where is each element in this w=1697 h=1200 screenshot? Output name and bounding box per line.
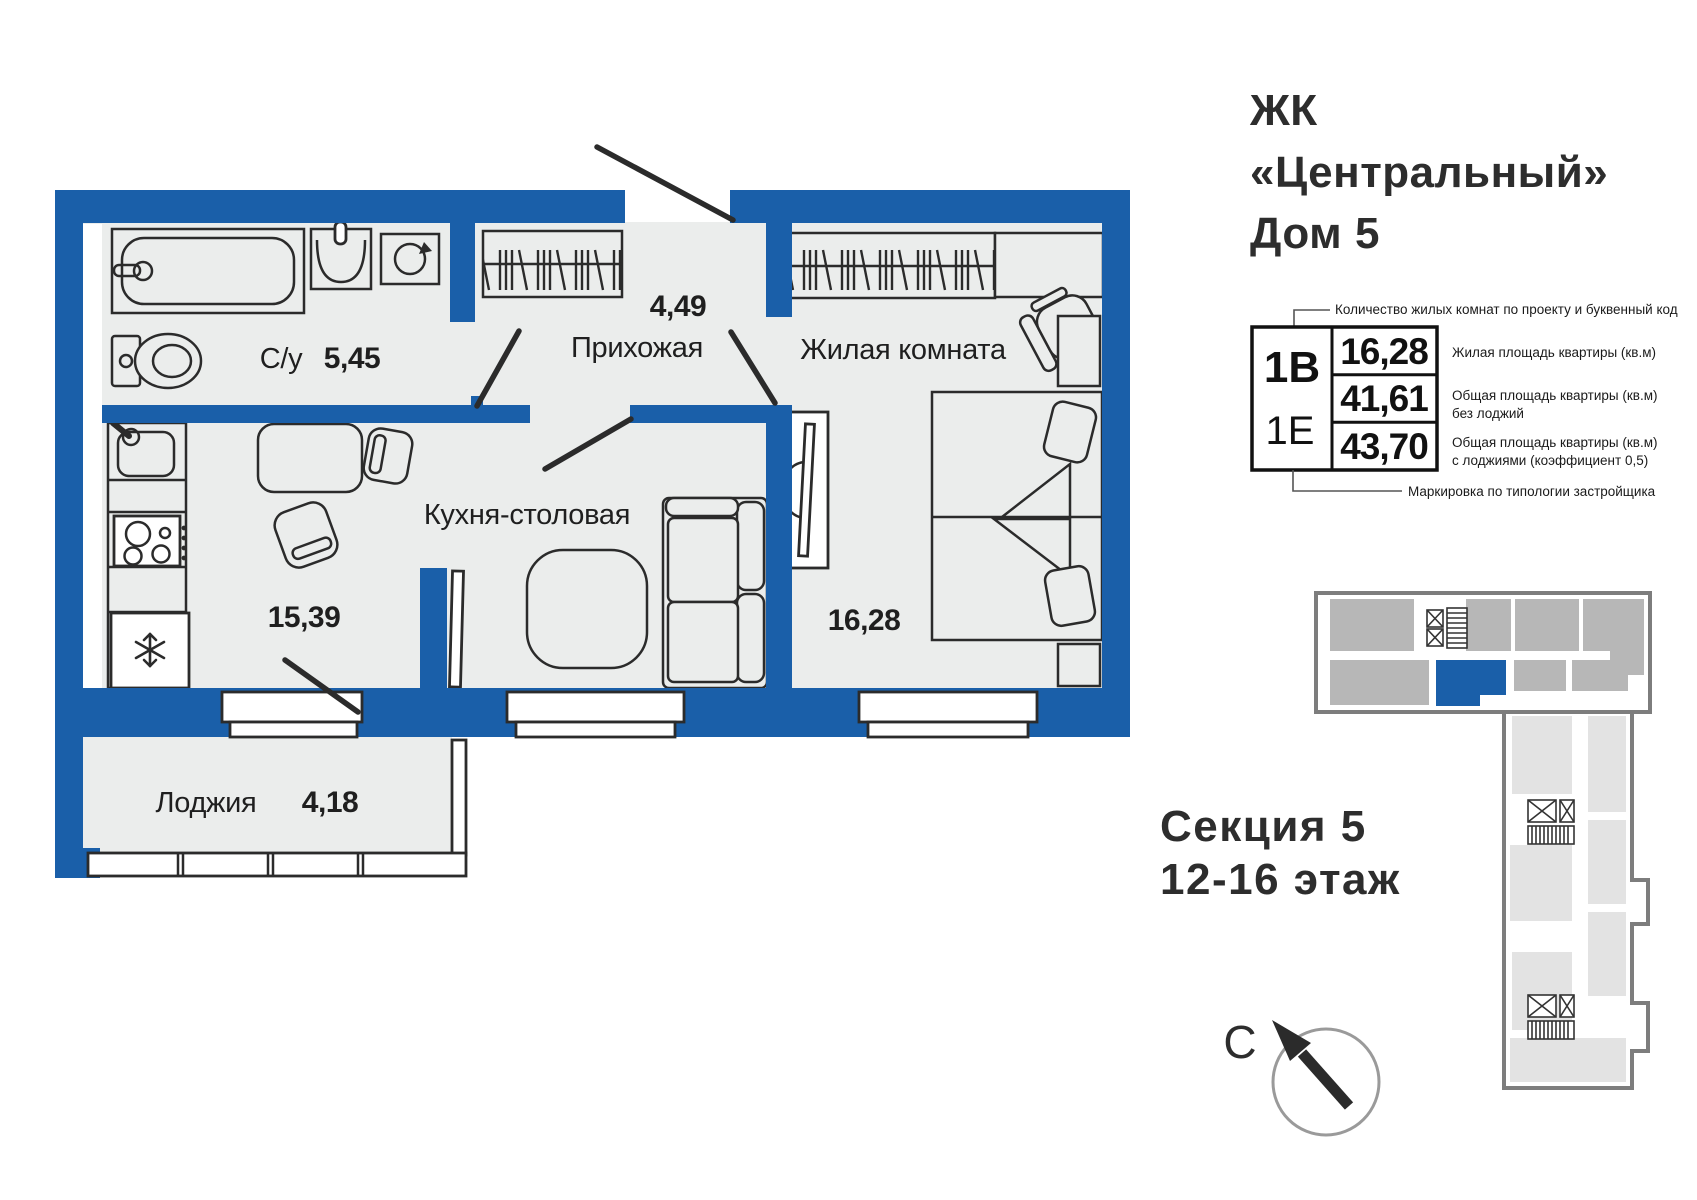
title-line-1: ЖК — [1249, 86, 1318, 135]
rug — [527, 550, 647, 668]
legend-value-3: 43,70 — [1340, 426, 1428, 467]
loggia-area: 4,18 — [302, 786, 358, 819]
sofa — [663, 498, 767, 688]
wall-left — [55, 190, 83, 878]
nightstand — [1058, 644, 1100, 686]
legend-value-2: 41,61 — [1340, 378, 1428, 419]
legend-label-2b: без лоджий — [1452, 406, 1524, 421]
hallway-area: 4,49 — [650, 290, 706, 323]
living-label: Жилая комната — [800, 334, 1007, 366]
windows — [222, 692, 1037, 737]
legend-label-3a: Общая площадь квартиры (кв.м) — [1452, 435, 1657, 450]
title-line-3: Дом 5 — [1250, 209, 1380, 258]
stove-icon — [114, 516, 186, 566]
legend-code-light: 1Е — [1266, 409, 1315, 453]
loggia-floor — [82, 737, 452, 855]
legend-bottom-note: Маркировка по типологии застройщика — [1408, 484, 1656, 499]
minimap-wing-stairs-icon — [1528, 995, 1574, 1039]
project-title: ЖК «Центральный» Дом 5 — [1249, 86, 1608, 258]
north-label: С — [1223, 1016, 1256, 1068]
floorplan-page: С/у 5,45 4,49 Прихожая Жилая комната 16,… — [0, 0, 1697, 1200]
legend: Количество жилых комнат по проекту и бук… — [1252, 302, 1678, 499]
wall-top-right — [730, 190, 1130, 223]
floorplan-canvas: С/у 5,45 4,49 Прихожая Жилая комната 16,… — [0, 0, 1697, 1200]
legend-label-2a: Общая площадь квартиры (кв.м) — [1452, 388, 1657, 403]
wall-hall-living-top — [766, 222, 792, 317]
legend-top-note: Количество жилых комнат по проекту и бук… — [1335, 302, 1678, 317]
tv-icon — [449, 571, 463, 687]
living-area: 16,28 — [828, 604, 901, 637]
wall-bath-kitchen — [102, 405, 530, 423]
minimap-wing-stairs-icon — [1528, 800, 1574, 844]
loggia-label: Лоджия — [156, 787, 257, 819]
hallway-label: Прихожая — [571, 332, 703, 364]
legend-value-1: 16,28 — [1340, 331, 1428, 372]
wardrobe-living — [778, 233, 995, 298]
shaft-strip — [82, 224, 102, 688]
wall-bath-hall — [450, 222, 475, 322]
legend-label-3b: с лоджиями (коэффициент 0,5) — [1452, 453, 1648, 468]
section-line-2: 12-16 этаж — [1160, 855, 1401, 904]
fridge-icon — [111, 613, 189, 688]
toilet-icon — [112, 334, 201, 388]
bathtub-icon — [112, 229, 304, 313]
bed — [932, 392, 1102, 640]
kitchen-area: 15,39 — [268, 601, 341, 634]
section-line-1: Секция 5 — [1160, 802, 1367, 851]
bathroom-area: 5,45 — [324, 342, 380, 375]
legend-label-1: Жилая площадь квартиры (кв.м) — [1452, 345, 1656, 360]
wall-top-left — [55, 190, 625, 223]
wardrobe-hallway — [483, 231, 622, 297]
kitchen-chair — [362, 427, 414, 486]
window-dining — [507, 692, 684, 737]
loggia-glazing — [88, 853, 466, 876]
wall-hall-kitchen — [630, 405, 768, 423]
title-line-2: «Центральный» — [1250, 148, 1608, 197]
wall-tv-stub — [420, 568, 447, 690]
kitchen-label: Кухня-столовая — [424, 499, 630, 531]
washing-machine-icon — [381, 234, 439, 284]
wall-right — [1102, 190, 1130, 737]
legend-code-bold: 1В — [1264, 343, 1320, 392]
north-arrow-icon — [1302, 1053, 1349, 1106]
wall-dining-living — [766, 405, 792, 690]
north-compass: С — [1223, 1016, 1379, 1135]
bath-sink-icon — [311, 222, 371, 289]
nightstand — [1058, 316, 1100, 386]
desk — [995, 233, 1103, 297]
loggia-side-wall — [452, 740, 466, 855]
bathroom-label: С/у — [260, 343, 303, 375]
section-info: Секция 5 12-16 этаж — [1160, 802, 1401, 904]
kitchen-table — [258, 424, 362, 492]
window-living — [859, 692, 1037, 737]
